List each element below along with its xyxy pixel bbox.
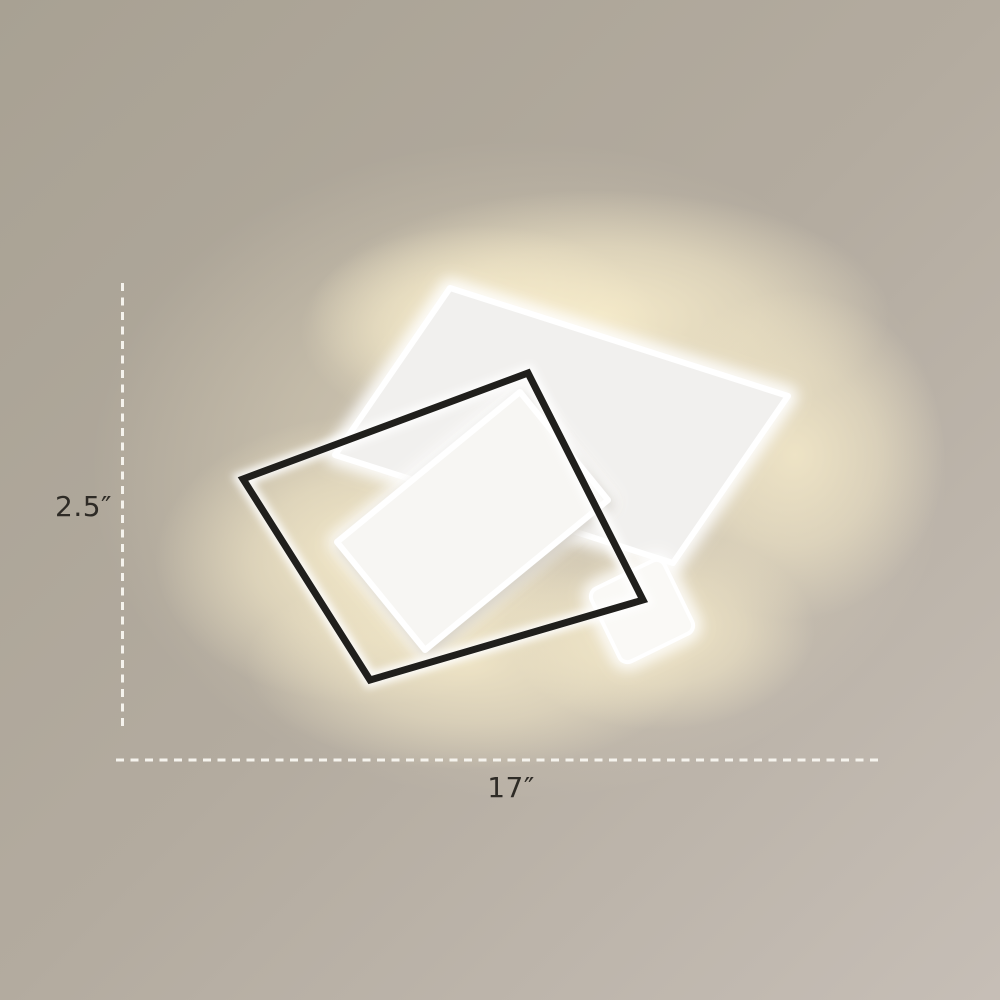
width-dimension-label: 17″ <box>451 774 571 802</box>
height-dimension-label: 2.5″ <box>38 493 112 521</box>
ceiling-lamp-illustration <box>0 0 1000 1000</box>
product-photo: 2.5″ 17″ <box>0 0 1000 1000</box>
